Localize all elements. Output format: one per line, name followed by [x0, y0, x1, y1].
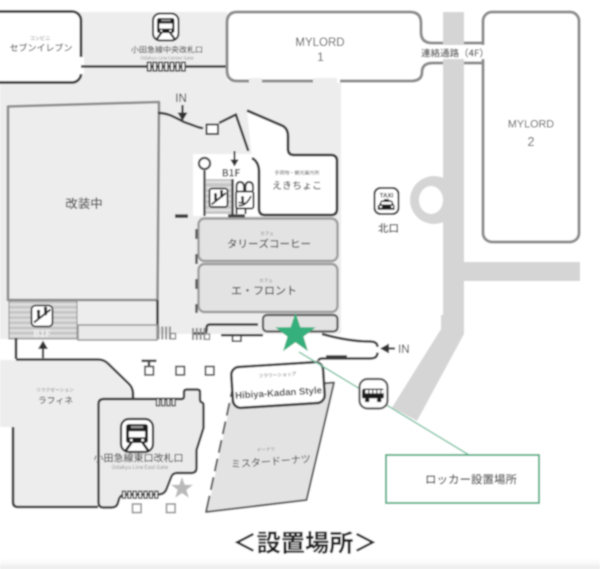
svg-text:IN: IN: [398, 344, 410, 356]
svg-text:TAXI: TAXI: [380, 193, 394, 200]
svg-text:MYLORD: MYLORD: [295, 37, 344, 49]
svg-text:2: 2: [528, 135, 535, 149]
svg-text:MYLORD: MYLORD: [508, 119, 554, 131]
svg-text:IN: IN: [175, 93, 187, 105]
svg-text:1: 1: [317, 50, 324, 64]
